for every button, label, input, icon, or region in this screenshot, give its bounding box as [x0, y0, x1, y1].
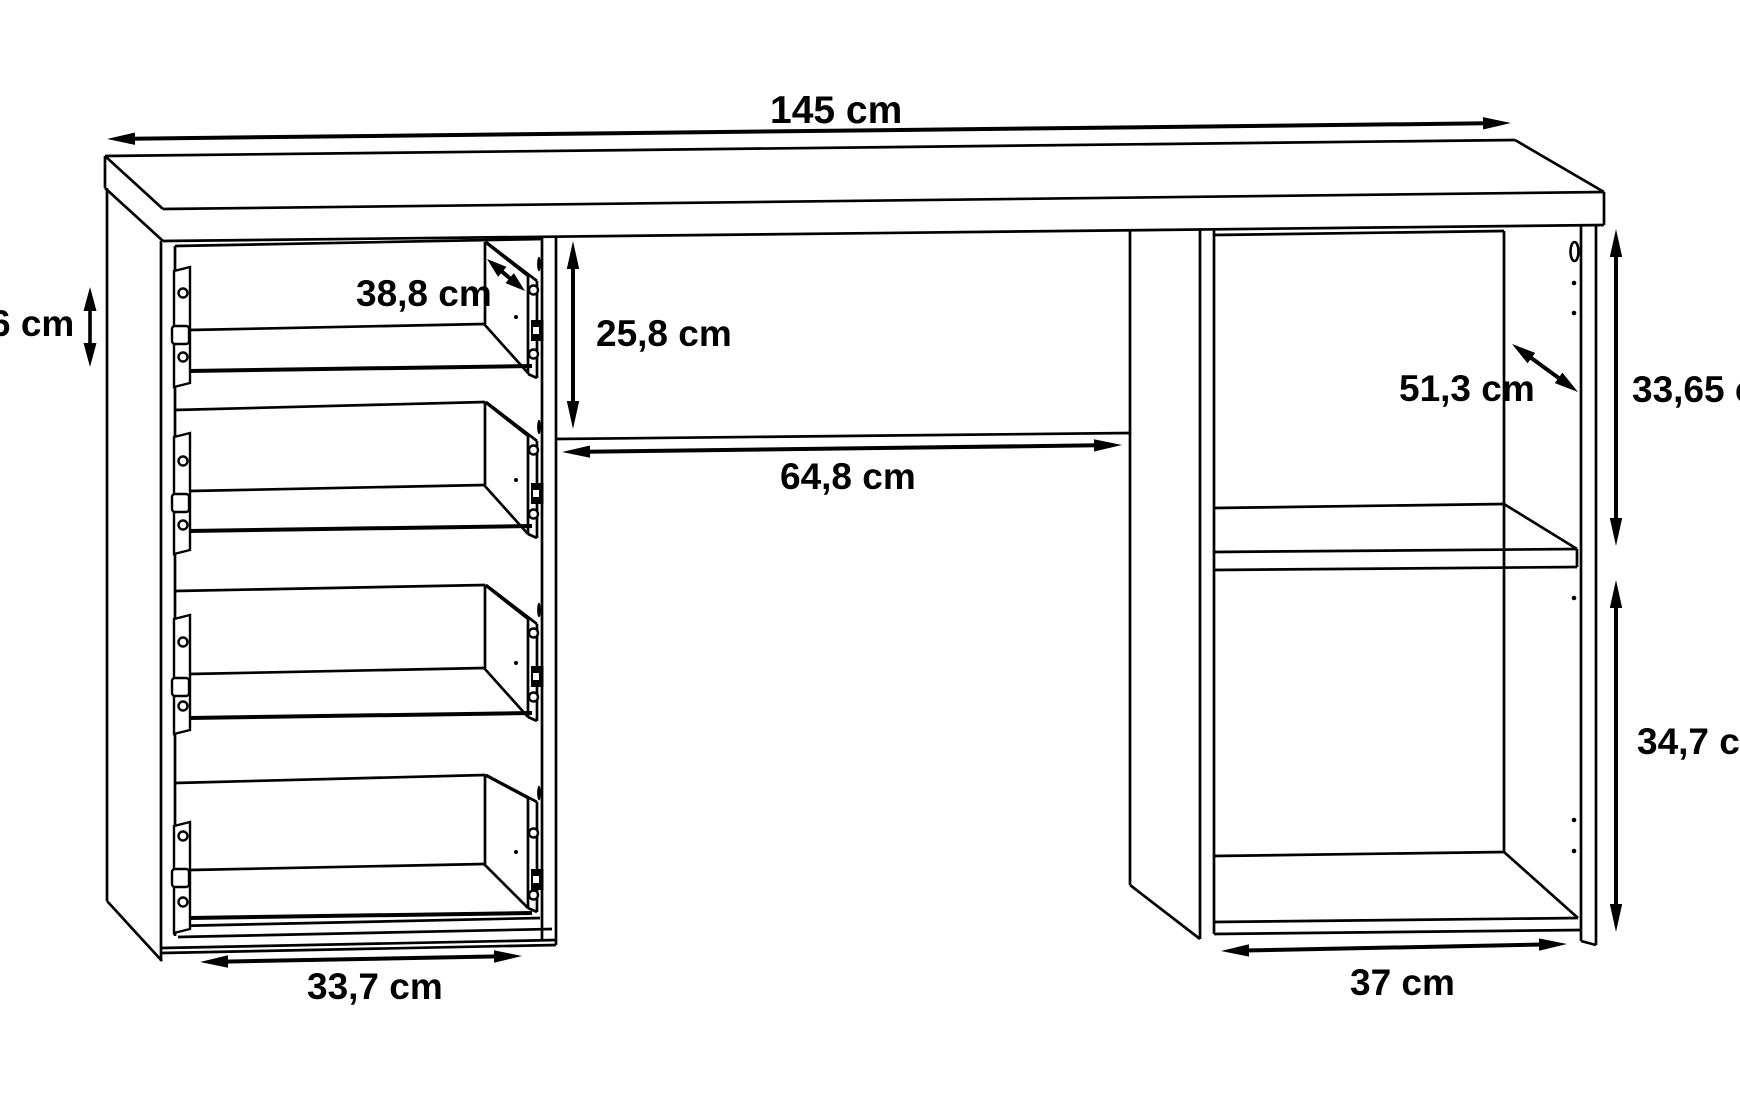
svg-text:25,8 cm: 25,8 cm: [596, 313, 732, 354]
svg-text:33,7 cm: 33,7 cm: [307, 966, 443, 1007]
svg-text:145 cm: 145 cm: [770, 89, 902, 132]
svg-text:33,65 cm: 33,65 cm: [1632, 369, 1740, 410]
svg-text:51,3 cm: 51,3 cm: [1399, 368, 1535, 409]
svg-text:6 cm: 6 cm: [0, 303, 74, 344]
svg-text:38,8 cm: 38,8 cm: [356, 273, 492, 314]
svg-text:64,8 cm: 64,8 cm: [780, 456, 916, 497]
svg-text:34,7 cm: 34,7 cm: [1637, 721, 1740, 762]
svg-text:37 cm: 37 cm: [1350, 962, 1455, 1003]
